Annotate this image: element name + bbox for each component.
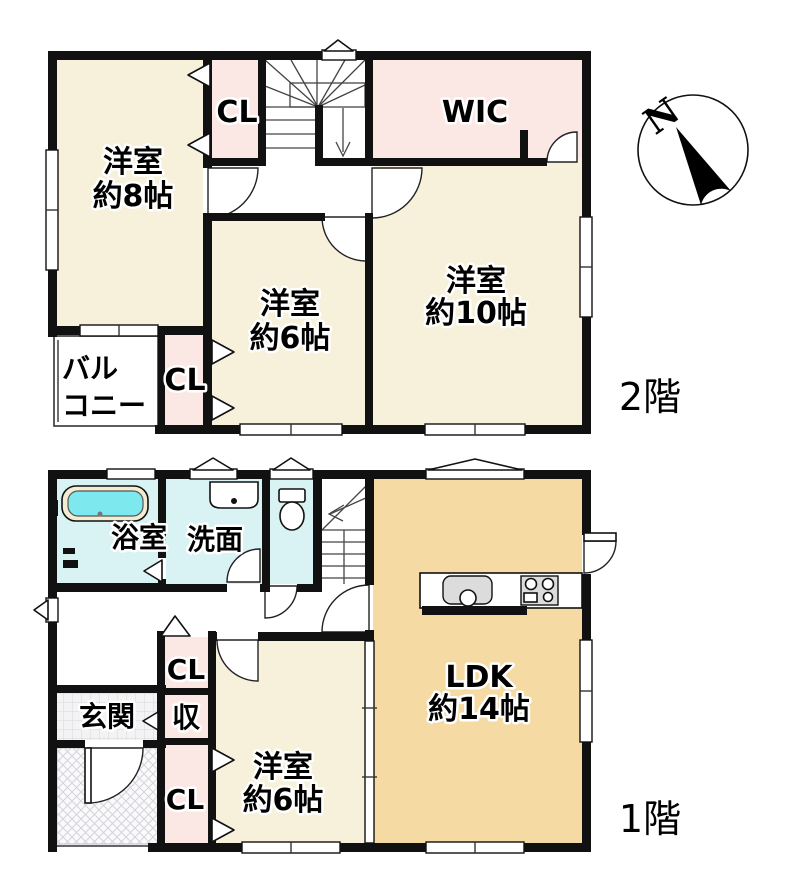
label-closet-mid-f1: CL (167, 653, 206, 686)
floor1-label: 1階 (619, 797, 681, 841)
label-bedroom-f1: 洋室 (253, 750, 313, 785)
label-bedroom-size-f1: 約6帖 (243, 783, 324, 818)
floor1-plan: 浴室 洗面 玄関 収 CL CL 洋室 約6帖 LDK 約14帖 (34, 458, 616, 853)
compass: N (636, 90, 748, 205)
floor2-plan: 洋室 約8帖 CL WIC 洋室 約6帖 洋室 約10帖 バル コニー CL (46, 40, 592, 435)
label-middle-bedroom-size-f2: 約6帖 (250, 321, 331, 356)
toilet (279, 489, 305, 530)
label-west-bedroom-size-f2: 約8帖 (93, 179, 174, 214)
label-wic-f2: WIC (442, 95, 508, 130)
washbasin (210, 482, 258, 508)
label-middle-bedroom-f2: 洋室 (260, 287, 320, 322)
vent-triangle-ldk (428, 459, 522, 470)
vent-triangle-hall-window (34, 600, 48, 620)
label-washroom: 洗面 (187, 523, 243, 556)
hallway-entrance-f1 (57, 584, 163, 693)
floor2-label: 2階 (619, 375, 681, 419)
kitchen-stove (521, 576, 558, 605)
kitchen-counter (420, 573, 582, 615)
label-bathroom: 浴室 (111, 521, 167, 554)
label-east-bedroom-size-f2: 約10帖 (425, 296, 527, 331)
label-entrance: 玄関 (79, 700, 135, 733)
label-balcony-line2: コニー (62, 389, 146, 422)
label-west-bedroom-f2: 洋室 (103, 145, 163, 180)
label-storage: 収 (172, 701, 201, 734)
stairwell-f1 (322, 479, 368, 584)
label-closet-top-f2: CL (216, 95, 257, 130)
front-door-leaf (85, 748, 91, 803)
vent-triangle-toilet (273, 458, 310, 470)
label-closet-bottom-f2: CL (164, 363, 205, 398)
label-balcony-line1: バル (62, 352, 118, 385)
door-kitchen-back (584, 541, 616, 573)
kitchen-backdoor-leaf (584, 533, 616, 541)
vent-triangle-stairs-f2 (324, 40, 353, 51)
floorplan-page: 洋室 約8帖 CL WIC 洋室 約6帖 洋室 約10帖 バル コニー CL (0, 0, 800, 894)
kitchen-faucet (460, 590, 476, 606)
label-east-bedroom-f2: 洋室 (446, 264, 506, 299)
floorplan-svg: 洋室 約8帖 CL WIC 洋室 約6帖 洋室 約10帖 バル コニー CL (0, 0, 800, 894)
label-ldk: LDK (445, 660, 514, 695)
vent-triangle-washroom (193, 458, 233, 470)
label-ldk-size: 約14帖 (428, 692, 530, 727)
label-closet-bottom-f1: CL (166, 783, 205, 816)
